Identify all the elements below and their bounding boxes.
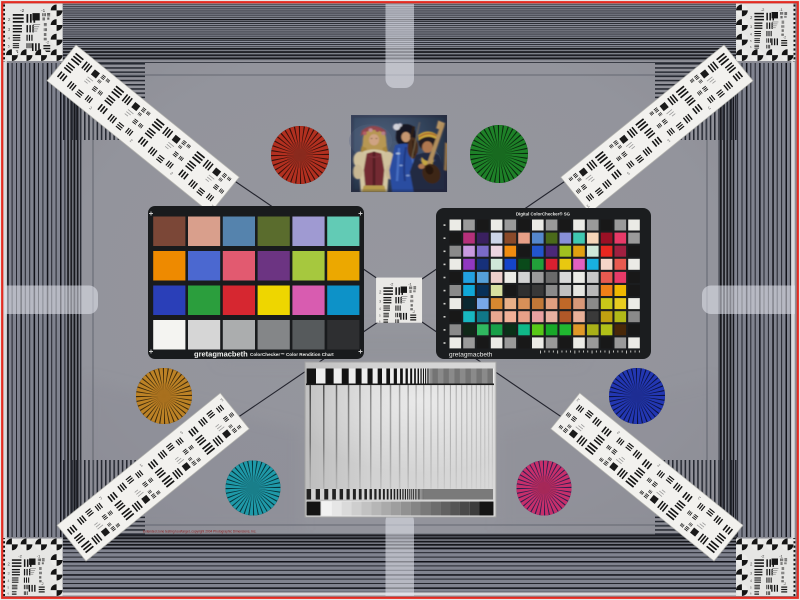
svg-text:-2: -2 [783,582,786,586]
svg-text:4: 4 [750,579,752,583]
svg-text:3: 3 [379,299,381,303]
svg-text:-2: -2 [412,310,415,314]
svg-text:-1: -1 [41,8,46,13]
svg-text:ColorChecker™ Color Rendition: ColorChecker™ Color Rendition Chart [250,352,334,357]
svg-text:-2: -2 [783,35,786,39]
svg-text:-2: -2 [46,40,49,44]
svg-text:Extended zone testing tool/tar: Extended zone testing tool/target, copyr… [143,530,257,534]
svg-text:4: 4 [379,307,381,311]
svg-text:4: 4 [750,32,752,36]
svg-text:5: 5 [8,44,10,48]
svg-text:3: 3 [750,571,752,575]
svg-text:gretagmacbeth: gretagmacbeth [194,350,248,359]
svg-text:-2: -2 [41,582,44,586]
svg-text:3: 3 [750,25,752,29]
svg-text:3: 3 [8,571,10,575]
svg-text:2: 2 [8,17,11,23]
svg-text:Digital ColorChecker® SG: Digital ColorChecker® SG [516,212,571,217]
svg-text:4: 4 [8,579,10,583]
svg-text:gretagmacbeth: gretagmacbeth [449,352,493,359]
svg-text:-2: -2 [20,8,25,13]
